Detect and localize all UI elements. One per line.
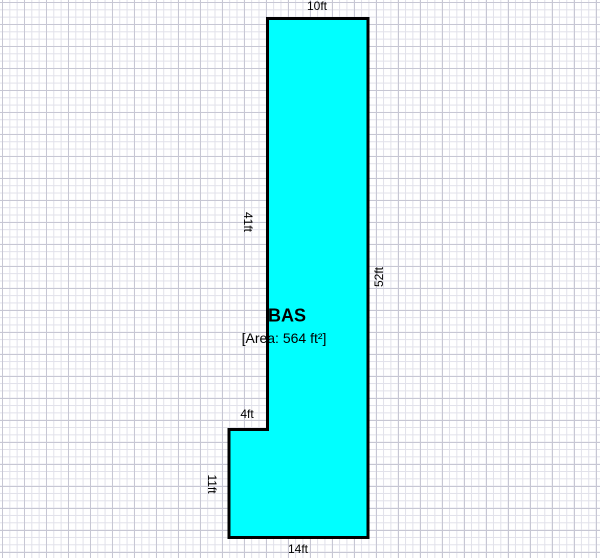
- room-area-label: [Area: 564 ft²]: [242, 330, 327, 346]
- dimension-label-top: 10ft: [307, 0, 327, 12]
- dimension-label-left-lower: 11ft: [206, 474, 218, 493]
- room-name-label: BAS: [268, 306, 306, 327]
- sketch-drawing-layer: [0, 0, 600, 558]
- dimension-label-bottom: 14ft: [288, 543, 308, 555]
- dimension-label-right: 52ft: [373, 267, 385, 287]
- dimension-label-notch: 4ft: [240, 408, 253, 420]
- bas-area-polygon[interactable]: [229, 19, 368, 538]
- dimension-label-left-upper: 41ft: [242, 212, 254, 232]
- sketch-grid-canvas[interactable]: 10ft 41ft 52ft 4ft 11ft 14ft BAS [Area: …: [0, 0, 600, 558]
